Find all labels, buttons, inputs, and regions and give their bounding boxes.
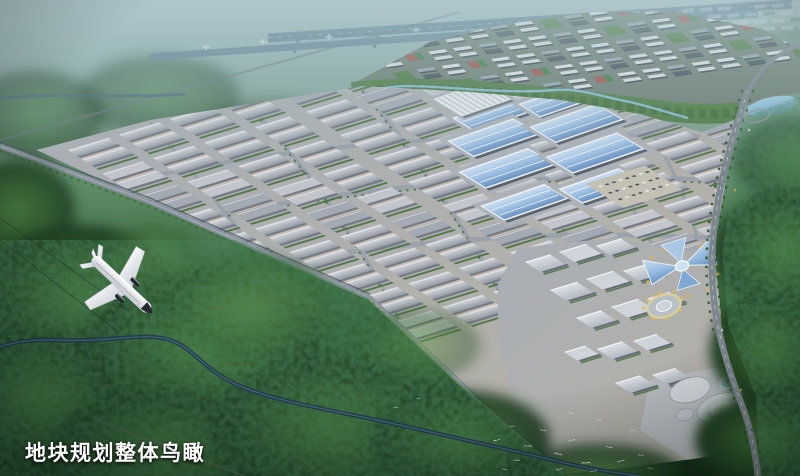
aerial-rendering: 地块规划整体鸟瞰 — [0, 0, 800, 476]
vignette — [0, 0, 800, 476]
scene-svg — [0, 0, 800, 476]
caption-title: 地块规划整体鸟瞰 — [25, 437, 205, 467]
